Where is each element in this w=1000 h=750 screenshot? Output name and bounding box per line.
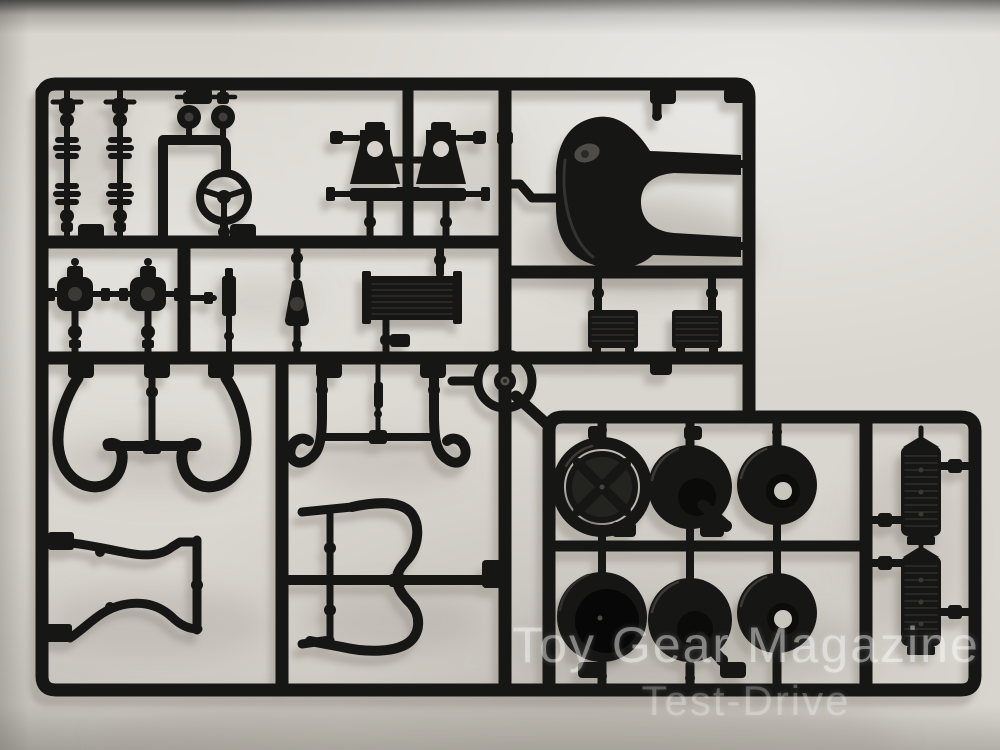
- sprue-canvas: [0, 0, 1000, 750]
- sprue-photo: Toy Gear Magazine Test-Drive: [0, 0, 1000, 750]
